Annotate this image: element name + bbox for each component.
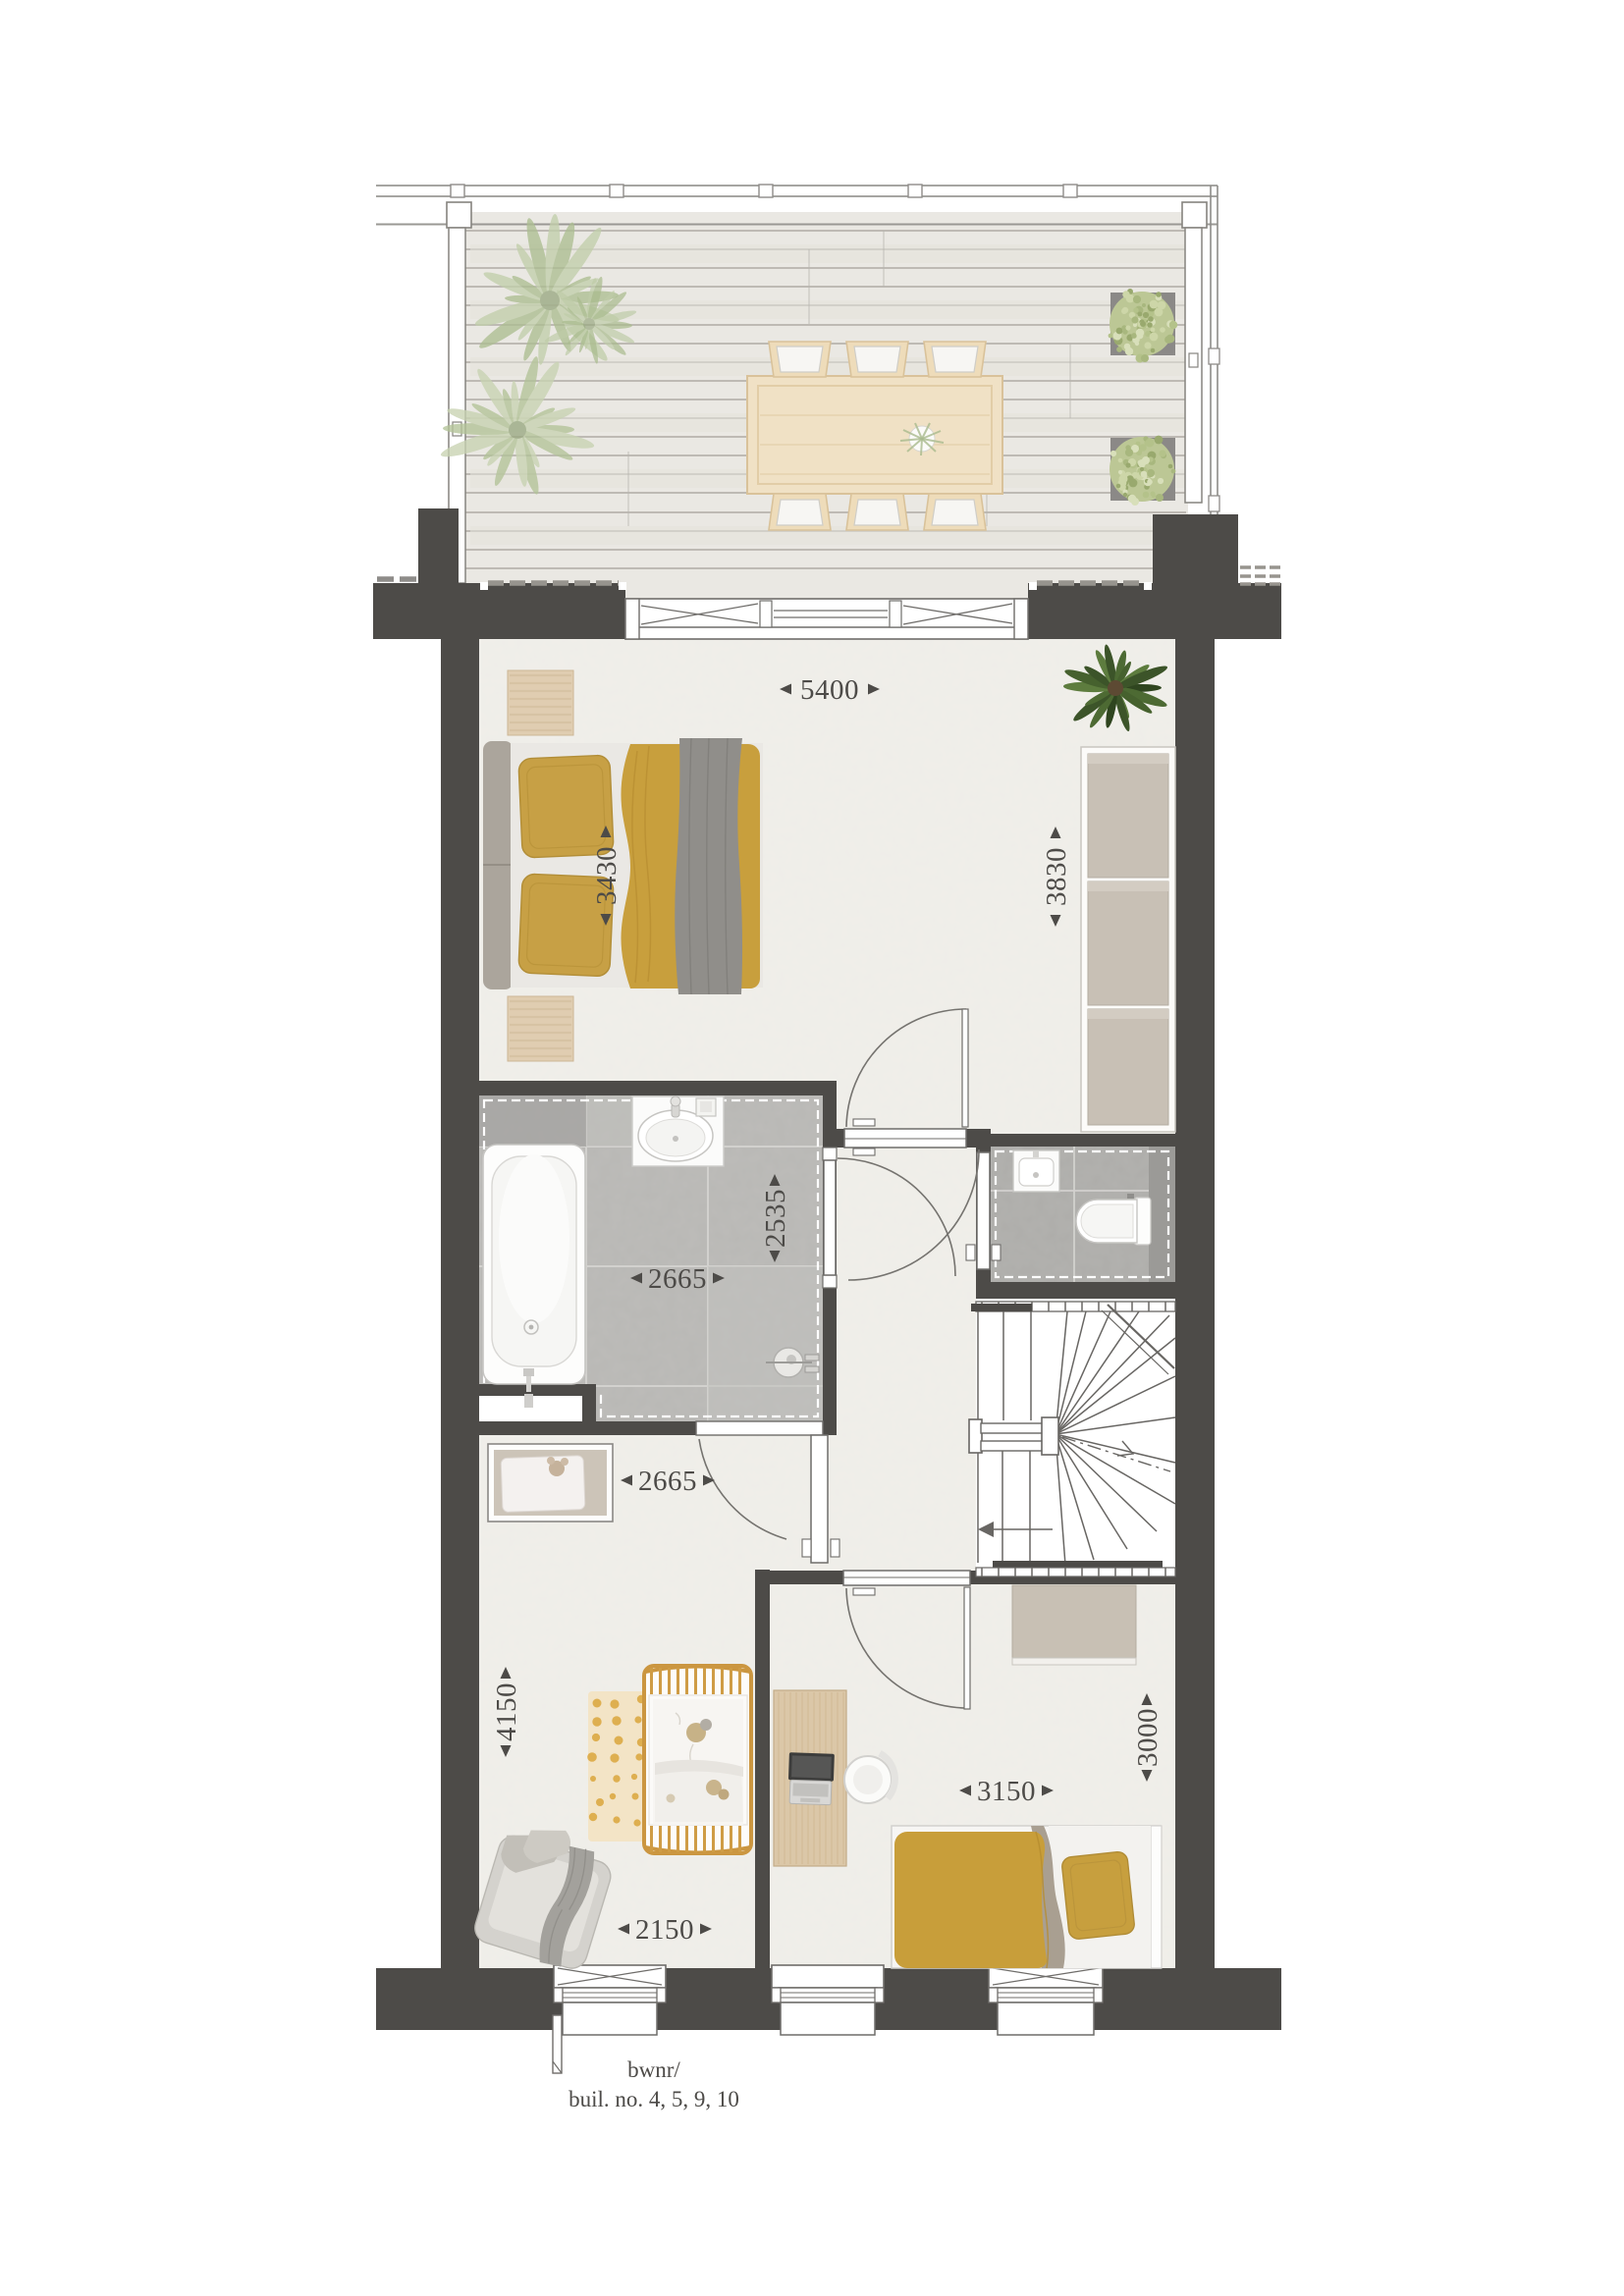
svg-text:3430: 3430 xyxy=(591,846,623,905)
svg-text:2150: 2150 xyxy=(635,1914,694,1946)
svg-text:2665: 2665 xyxy=(638,1466,697,1497)
svg-text:5400: 5400 xyxy=(800,674,859,706)
svg-text:2665: 2665 xyxy=(648,1263,707,1295)
svg-text:buil. no. 4, 5, 9, 10: buil. no. 4, 5, 9, 10 xyxy=(568,2087,739,2111)
svg-text:4150: 4150 xyxy=(491,1682,522,1741)
svg-text:3150: 3150 xyxy=(977,1776,1036,1807)
svg-text:3830: 3830 xyxy=(1041,847,1072,906)
svg-text:3000: 3000 xyxy=(1132,1708,1164,1767)
svg-text:bwnr/: bwnr/ xyxy=(627,2057,680,2082)
svg-text:2535: 2535 xyxy=(760,1189,791,1248)
